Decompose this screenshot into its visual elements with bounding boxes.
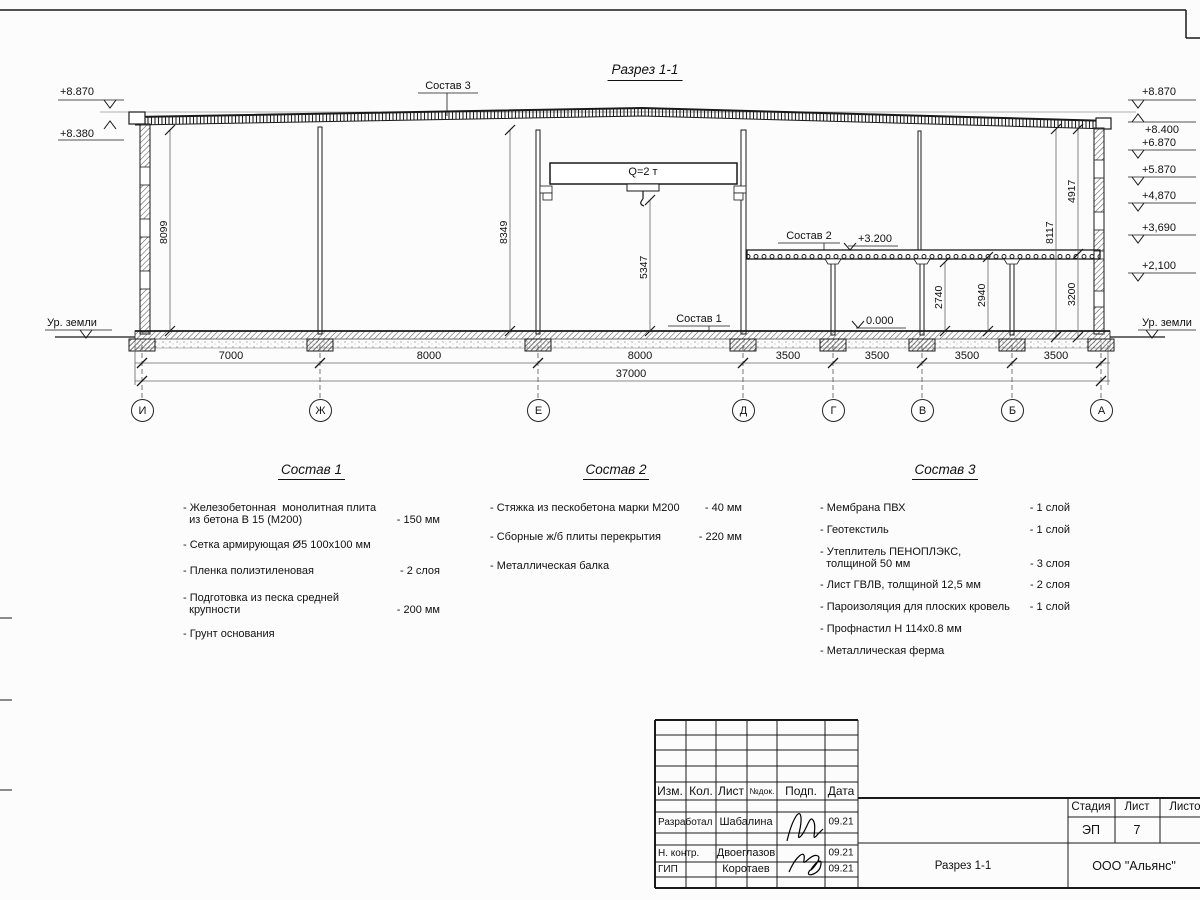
section-drawing-linework [0,0,1200,900]
elevation-right-2: +8.400 [1145,124,1179,137]
item-label: - Металлическая ферма [820,645,944,657]
tb-header-podp: Подп. [785,784,817,798]
item-value: - 2 слоя [1030,579,1070,591]
axis-label-i: И [131,399,154,422]
item-label: - Мембрана ПВХ [820,502,905,514]
item-label: - Пленка полиэтиленовая [183,565,314,577]
item-label: - Профнастил Н 114х0.8 мм [820,623,962,635]
list-item: - Стяжка из пескобетона марки М200- 40 м… [490,502,742,514]
axis-letter: Г [831,405,837,417]
item-value: - 220 мм [699,531,742,543]
material-list-title: Состав 1 [278,462,345,480]
tb-date-gip: 09.21 [828,864,853,875]
item-value: - 1 слой [1030,502,1070,514]
material-list-2: Состав 2 - Стяжка из пескобетона марки М… [490,462,742,572]
tb-sheet-label: Лист [1125,801,1150,813]
list-item: - Геотекстиль- 1 слой [820,524,1070,536]
tb-company: ООО "Альянс" [1092,859,1176,873]
elevation-right-4: +5.870 [1142,164,1176,177]
drawing-title: Разрез 1-1 [608,62,683,81]
elevation-left-1: +8.870 [60,86,94,99]
dim-7000: 7000 [219,350,243,363]
list-item: - Грунт основания [183,628,440,640]
vdim-4917: 4917 [1066,180,1078,203]
vdim-8117: 8117 [1044,221,1056,244]
item-value: - 2 слоя [400,565,440,577]
crane-capacity-label: Q=2 т [628,166,657,179]
axis-letter: И [139,405,147,417]
item-value: - 200 мм [397,604,440,616]
drawing-sheet: Разрез 1-1 +8.870 +8.380 Ур. земли +8.87… [0,0,1200,900]
list-item: - Пароизоляция для плоских кровель- 1 сл… [820,601,1070,613]
tb-header-data: Дата [828,784,855,798]
axis-label-g: Г [822,399,845,422]
vdim-3200: 3200 [1066,283,1078,306]
tb-name-developer: Шабалина [719,816,772,828]
list-item: - Металлическая ферма [820,645,1070,657]
list-item: - Пленка полиэтиленовая- 2 слоя [183,565,440,577]
vdim-5347: 5347 [638,256,650,279]
item-value: - 40 мм [705,502,742,514]
ground-level-left-label: Ур. земли [47,317,97,330]
list-item: - Подготовка из песка средней крупности-… [183,592,440,616]
material-list-1: Состав 1 - Железобетонная монолитная пли… [183,462,440,640]
list-item: - Сборные ж/б плиты перекрытия- 220 мм [490,531,742,543]
list-item: - Металлическая балка [490,560,742,572]
axis-label-a: А [1090,399,1113,422]
item-label: - Сборные ж/б плиты перекрытия [490,531,661,543]
elevation-right-6: +3,690 [1142,222,1176,235]
item-label: - Пароизоляция для плоских кровель [820,601,1010,613]
list-item: - Утеплитель ПЕНОПЛЭКС, толщиной 50 мм- … [820,546,1070,570]
item-label: - Утеплитель ПЕНОПЛЭКС, толщиной 50 мм [820,546,961,570]
tb-doc-title: Разрез 1-1 [935,860,991,872]
dim-3500c: 3500 [955,350,979,363]
material-list-title: Состав 2 [583,462,650,480]
tb-sheets-label: Листов [1169,801,1200,813]
vdim-2740: 2740 [933,286,945,309]
dim-3500b: 3500 [865,350,889,363]
item-value: - 3 слоя [1030,558,1070,570]
tb-name-ncontrol: Двоеглазов [717,847,775,859]
axis-letter: В [919,405,926,417]
item-label: - Подготовка из песка средней крупности [183,592,339,616]
dim-8000a: 8000 [417,350,441,363]
item-label: - Грунт основания [183,628,275,640]
callout-sostav1: Состав 1 [676,313,722,326]
item-label: - Геотекстиль [820,524,889,536]
vdim-2940: 2940 [976,284,988,307]
tb-sheet-number: 7 [1134,823,1141,837]
item-label: - Стяжка из пескобетона марки М200 [490,502,680,514]
elevation-left-2: +8.380 [60,128,94,141]
tb-role-gip: ГИП [658,864,678,876]
list-item: - Профнастил Н 114х0.8 мм [820,623,1070,635]
tb-date-ncontrol: 09.21 [828,848,853,859]
item-label: - Железобетонная монолитная плита из бет… [183,502,376,526]
item-label: - Металлическая балка [490,560,609,572]
tb-name-gip: Коротаев [722,863,770,875]
vdim-8099: 8099 [158,221,170,244]
vdim-8349: 8349 [498,221,510,244]
tb-header-izm: Изм. [657,784,683,798]
list-item: - Железобетонная монолитная плита из бет… [183,502,440,526]
list-item: - Сетка армирующая Ø5 100х100 мм [183,539,440,551]
axis-letter: Д [740,405,747,417]
axis-label-b: Б [1001,399,1024,422]
elevation-right-7: +2,100 [1142,260,1176,273]
dim-8000b: 8000 [628,350,652,363]
axis-label-v: В [911,399,934,422]
dim-3500a: 3500 [776,350,800,363]
tb-role-developer: Разработал [658,817,712,829]
axis-letter: Е [535,405,542,417]
list-item: - Мембрана ПВХ- 1 слой [820,502,1070,514]
axis-label-e: Е [527,399,550,422]
item-value: - 150 мм [397,514,440,526]
material-list-3: Состав 3 - Мембрана ПВХ- 1 слой - Геотек… [820,462,1070,657]
signature [787,814,823,875]
level-floor-label: +3.200 [858,233,892,246]
tb-header-kol: Кол. [689,784,713,798]
ground-level-right-label: Ур. земли [1142,317,1192,330]
material-list-title: Состав 3 [912,462,979,480]
callout-sostav3: Состав 3 [425,80,471,93]
elevation-right-5: +4,870 [1142,190,1176,203]
tb-stage-label: Стадия [1071,801,1110,813]
item-value: - 1 слой [1030,601,1070,613]
list-item: - Лист ГВЛВ, толщиной 12,5 мм- 2 слоя [820,579,1070,591]
tb-header-ndok: №док. [750,786,775,796]
item-value: - 1 слой [1030,524,1070,536]
tb-stage-value: ЭП [1082,823,1100,837]
dim-3500d: 3500 [1044,350,1068,363]
elevation-right-3: +6.870 [1142,137,1176,150]
callout-sostav2: Состав 2 [786,230,832,243]
tb-date-developer: 09.21 [828,817,853,828]
elevation-right-1: +8.870 [1142,86,1176,99]
axis-letter: Ж [315,405,325,417]
tb-role-ncontrol: Н. контр. [658,848,699,860]
item-label: - Сетка армирующая Ø5 100х100 мм [183,539,371,551]
dim-total-37000: 37000 [616,368,647,381]
item-label: - Лист ГВЛВ, толщиной 12,5 мм [820,579,981,591]
axis-letter: А [1098,405,1105,417]
axis-label-zh: Ж [309,399,332,422]
tb-header-list: Лист [718,784,744,798]
level-zero-label: 0.000 [866,315,894,328]
axis-letter: Б [1009,405,1016,417]
axis-label-d: Д [732,399,755,422]
